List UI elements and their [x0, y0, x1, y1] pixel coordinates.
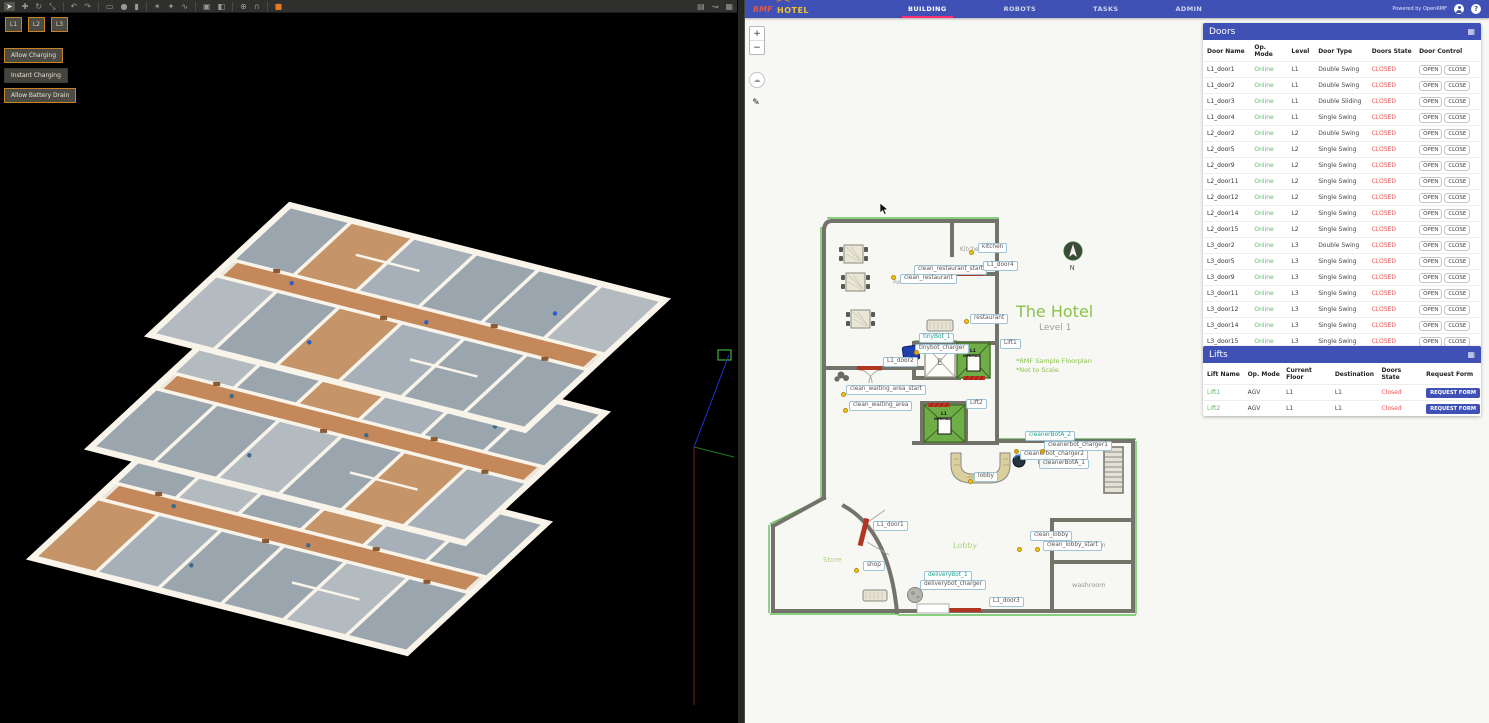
- door-level: L3: [1287, 270, 1314, 286]
- zoom-out-button[interactable]: −: [750, 41, 764, 54]
- logo-hotel-text: HOTEL: [777, 6, 809, 15]
- door-row-L1_door3: L1_door3OnlineL1Double SlidingCLOSEDOPEN…: [1203, 94, 1481, 110]
- door-mode: Online: [1250, 238, 1287, 254]
- map-note2: *Not to Scale: [1016, 366, 1059, 374]
- door-level: L1: [1287, 110, 1314, 126]
- close-button[interactable]: CLOSE: [1444, 65, 1470, 75]
- lift-destination: L1: [1331, 385, 1378, 401]
- open-button[interactable]: OPEN: [1419, 193, 1442, 203]
- close-button[interactable]: CLOSE: [1444, 225, 1470, 235]
- door-mode: Online: [1250, 222, 1287, 238]
- door-name: L2_door12: [1203, 190, 1250, 206]
- lifts-panel-title: Lifts: [1209, 350, 1228, 360]
- door-name: L1_door1: [1203, 62, 1250, 78]
- screenshot-icon[interactable]: ▤: [697, 2, 705, 11]
- close-button[interactable]: CLOSE: [1444, 193, 1470, 203]
- lifts-panel: Lifts ▦ Lift NameOp. ModeCurrent FloorDe…: [1203, 346, 1481, 416]
- lift1-cell: L1 NORMAL: [957, 343, 990, 380]
- doorway: [917, 604, 949, 613]
- door-row-L3_door9: L3_door9OnlineL3Single SwingCLOSEDOPENCL…: [1203, 270, 1481, 286]
- door-mode: Online: [1250, 286, 1287, 302]
- door-name: L1_door4: [1203, 110, 1250, 126]
- close-button[interactable]: CLOSE: [1444, 97, 1470, 107]
- lift-floor: L1: [1282, 401, 1331, 417]
- door-row-L2_door14: L2_door14OnlineL2Single SwingCLOSEDOPENC…: [1203, 206, 1481, 222]
- hotel-3d-model: [0, 13, 737, 723]
- open-button[interactable]: OPEN: [1419, 81, 1442, 91]
- door-name: L2_door9: [1203, 158, 1250, 174]
- lift2-cell: L1 NORMAL: [924, 403, 965, 442]
- door-mode: Online: [1250, 254, 1287, 270]
- doors-table: Door NameOp. ModeLevelDoor TypeDoors Sta…: [1203, 40, 1481, 349]
- svg-text:NORMAL: NORMAL: [934, 417, 951, 421]
- curve-icon[interactable]: ↝: [712, 2, 719, 11]
- door-row-L3_door5: L3_door5OnlineL3Single SwingCLOSEDOPENCL…: [1203, 254, 1481, 270]
- floorplan-map[interactable]: E L1 NORMAL L1 NORMAL: [767, 215, 1149, 617]
- door-type: Single Swing: [1314, 110, 1368, 126]
- lifts-table-header: Lift NameOp. ModeCurrent FloorDestinatio…: [1203, 363, 1481, 385]
- scale-icon[interactable]: ⤡: [49, 2, 55, 11]
- door-row-L3_door11: L3_door11OnlineL3Single SwingCLOSEDOPENC…: [1203, 286, 1481, 302]
- doors-col-level: Level: [1287, 40, 1314, 62]
- close-button[interactable]: CLOSE: [1444, 273, 1470, 283]
- door-mode: Online: [1250, 62, 1287, 78]
- close-button[interactable]: CLOSE: [1444, 241, 1470, 251]
- doors-col-door-control: Door Control: [1415, 40, 1481, 62]
- lift-mode: AGV: [1244, 401, 1283, 417]
- close-button[interactable]: CLOSE: [1444, 145, 1470, 155]
- door-level: L2: [1287, 190, 1314, 206]
- map-layers-button[interactable]: ☁: [749, 72, 765, 88]
- doors-col-door-type: Door Type: [1314, 40, 1368, 62]
- door-row-L3_door2: L3_door2OnlineL3Double SwingCLOSEDOPENCL…: [1203, 238, 1481, 254]
- lifts-col-request-form: Request Form: [1422, 363, 1481, 385]
- help-icon[interactable]: ?: [1471, 4, 1481, 14]
- compass-icon: N: [1064, 242, 1082, 272]
- map-title: The Hotel: [1015, 302, 1093, 321]
- door-row-L1_door4: L1_door4OnlineL1Single SwingCLOSEDOPENCL…: [1203, 110, 1481, 126]
- lifts-col-lift-name: Lift Name: [1203, 363, 1244, 385]
- door-type: Double Swing: [1314, 78, 1368, 94]
- tab-building[interactable]: BUILDING: [908, 0, 947, 18]
- box-icon[interactable]: ▭: [106, 2, 114, 11]
- map-subtitle: Level 1: [1039, 323, 1071, 333]
- open-button[interactable]: OPEN: [1419, 305, 1442, 315]
- door-level: L2: [1287, 206, 1314, 222]
- logo-rmf-text: RMF: [753, 5, 773, 14]
- door-type: Single Swing: [1314, 302, 1368, 318]
- plant-icon: [834, 372, 849, 382]
- undo-icon[interactable]: ↶: [71, 2, 78, 11]
- lobby-text: Lobby: [953, 541, 977, 550]
- door-mode: Online: [1250, 206, 1287, 222]
- door-state: CLOSED: [1368, 142, 1415, 158]
- door-state: CLOSED: [1368, 62, 1415, 78]
- door-type: Double Sliding: [1314, 94, 1368, 110]
- door-state: CLOSED: [1368, 174, 1415, 190]
- door-state: CLOSED: [1368, 206, 1415, 222]
- door-row-L3_door12: L3_door12OnlineL3Single SwingCLOSEDOPENC…: [1203, 302, 1481, 318]
- door-level: L1: [1287, 94, 1314, 110]
- door-mode: Online: [1250, 270, 1287, 286]
- door-state: CLOSED: [1368, 222, 1415, 238]
- door-name: L2_door2: [1203, 126, 1250, 142]
- door-name: L2_door15: [1203, 222, 1250, 238]
- door-row-L1_door2: L1_door2OnlineL1Double SwingCLOSEDOPENCL…: [1203, 78, 1481, 94]
- deliverybot-robot: [908, 588, 923, 603]
- door-type: Double Swing: [1314, 62, 1368, 78]
- close-button[interactable]: CLOSE: [1444, 337, 1470, 347]
- door-name: L3_door14: [1203, 318, 1250, 334]
- record-icon[interactable]: ■: [275, 2, 283, 11]
- kitchen-text: Kitchen: [960, 246, 983, 253]
- door-name: L1_door2: [1203, 78, 1250, 94]
- washroom-text: washroom: [1072, 581, 1106, 589]
- doors-panel-header: Doors ▦: [1203, 23, 1481, 40]
- door-level: L3: [1287, 302, 1314, 318]
- door-row-L1_door1: L1_door1OnlineL1Double SwingCLOSEDOPENCL…: [1203, 62, 1481, 78]
- door-type: Single Swing: [1314, 142, 1368, 158]
- door-mode: Online: [1250, 142, 1287, 158]
- door-row-L2_door2: L2_door2OnlineL2Double SwingCLOSEDOPENCL…: [1203, 126, 1481, 142]
- open-button[interactable]: OPEN: [1419, 145, 1442, 155]
- doors-panel: Doors ▦ Door NameOp. ModeLevelDoor TypeD…: [1203, 23, 1481, 349]
- door-state: CLOSED: [1368, 238, 1415, 254]
- open-button[interactable]: OPEN: [1419, 129, 1442, 139]
- lift-floor: L1: [1282, 385, 1331, 401]
- gazebo-toolbar: ➤✚↻⤡↶↷▭●▮✶✦∿▣◧⊕∩■▤↝▦: [0, 0, 737, 13]
- floorplan-svg: E L1 NORMAL L1 NORMAL: [767, 215, 1149, 617]
- map-controls: + − ☁ ✎: [749, 26, 765, 110]
- door-row-L2_door12: L2_door12OnlineL2Single SwingCLOSEDOPENC…: [1203, 190, 1481, 206]
- svg-text:E: E: [937, 358, 943, 368]
- cylinder-icon[interactable]: ▮: [134, 2, 138, 11]
- door-row-L2_door5: L2_door5OnlineL2Single SwingCLOSEDOPENCL…: [1203, 142, 1481, 158]
- open-button[interactable]: OPEN: [1419, 273, 1442, 283]
- open-button[interactable]: OPEN: [1419, 161, 1442, 171]
- redo-icon[interactable]: ↷: [84, 2, 91, 11]
- lift-name: Lift2: [1203, 401, 1244, 417]
- door-state: CLOSED: [1368, 270, 1415, 286]
- door-name: L2_door11: [1203, 174, 1250, 190]
- directional-light-icon[interactable]: ∿: [181, 2, 188, 11]
- svg-text:NORMAL: NORMAL: [963, 354, 980, 358]
- door-row-L2_door11: L2_door11OnlineL2Single SwingCLOSEDOPENC…: [1203, 174, 1481, 190]
- open-button[interactable]: OPEN: [1419, 241, 1442, 251]
- door-type: Double Swing: [1314, 238, 1368, 254]
- sphere-icon[interactable]: ●: [120, 2, 127, 11]
- door-name: L1_door3: [1203, 94, 1250, 110]
- door-name: L3_door5: [1203, 254, 1250, 270]
- door-mode: Online: [1250, 318, 1287, 334]
- door-level: L3: [1287, 286, 1314, 302]
- door-mode: Online: [1250, 190, 1287, 206]
- door-name: L3_door2: [1203, 238, 1250, 254]
- tinybot-robot: [902, 345, 920, 361]
- close-button[interactable]: CLOSE: [1444, 257, 1470, 267]
- gazebo-3d-viewport[interactable]: ➤✚↻⤡↶↷▭●▮✶✦∿▣◧⊕∩■▤↝▦ L1L2L3 Allow Chargi…: [0, 0, 737, 723]
- rmf-hotel-logo: ^ RMF HOTEL: [753, 2, 813, 16]
- table-grid-icon[interactable]: ▦: [1467, 27, 1475, 36]
- rotate-icon[interactable]: ↻: [35, 2, 42, 11]
- map-draw-button[interactable]: ✎: [749, 96, 763, 110]
- door-state: CLOSED: [1368, 126, 1415, 142]
- door-mode: Online: [1250, 158, 1287, 174]
- lift-row-Lift2: Lift2AGVL1L1ClosedREQUEST FORM: [1203, 401, 1481, 417]
- door-level: L2: [1287, 174, 1314, 190]
- lifts-table: Lift NameOp. ModeCurrent FloorDestinatio…: [1203, 363, 1481, 416]
- door-name: L2_door5: [1203, 142, 1250, 158]
- snap-icon[interactable]: ∩: [254, 2, 260, 11]
- door-type: Single Swing: [1314, 174, 1368, 190]
- door-type: Single Swing: [1314, 318, 1368, 334]
- door-mode: Online: [1250, 174, 1287, 190]
- door-row-L2_door9: L2_door9OnlineL2Single SwingCLOSEDOPENCL…: [1203, 158, 1481, 174]
- door-level: L3: [1287, 254, 1314, 270]
- doors-panel-title: Doors: [1209, 27, 1235, 37]
- door-state: CLOSED: [1368, 78, 1415, 94]
- rmf-dashboard: ^ RMF HOTEL BUILDINGROBOTSTASKSADMIN Pow…: [745, 0, 1489, 723]
- tab-admin[interactable]: ADMIN: [1175, 0, 1202, 18]
- map-note1: *RMF Sample Floorplan: [1016, 357, 1092, 365]
- user-account-icon[interactable]: [1454, 4, 1464, 14]
- door-type: Single Swing: [1314, 158, 1368, 174]
- cleanerbot-robots: [1013, 455, 1051, 468]
- door-mode: Online: [1250, 126, 1287, 142]
- door-mode: Online: [1250, 94, 1287, 110]
- lifts-col-op--mode: Op. Mode: [1244, 363, 1283, 385]
- door-name: L3_door11: [1203, 286, 1250, 302]
- close-button[interactable]: CLOSE: [1444, 81, 1470, 91]
- doors-col-op--mode: Op. Mode: [1250, 40, 1287, 62]
- translate-icon[interactable]: ✚: [22, 2, 29, 11]
- svg-text:N: N: [1070, 264, 1075, 272]
- store-text: Store: [823, 556, 842, 564]
- door-mode: Online: [1250, 302, 1287, 318]
- map-zoom-control: + −: [749, 26, 765, 55]
- tab-robots[interactable]: ROBOTS: [1004, 0, 1037, 18]
- door-state: CLOSED: [1368, 158, 1415, 174]
- door-type: Single Swing: [1314, 270, 1368, 286]
- staircase: [1104, 447, 1123, 493]
- cursor-icon[interactable]: ➤: [4, 2, 15, 11]
- align-icon[interactable]: ⊕: [240, 2, 247, 11]
- open-button[interactable]: OPEN: [1419, 97, 1442, 107]
- door-type: Double Swing: [1314, 126, 1368, 142]
- open-button[interactable]: OPEN: [1419, 321, 1442, 331]
- door-level: L3: [1287, 238, 1314, 254]
- copy-icon[interactable]: ▣: [203, 2, 211, 11]
- reception-desk: [951, 453, 1010, 483]
- paste-icon[interactable]: ◧: [218, 2, 226, 11]
- door-name: L3_door9: [1203, 270, 1250, 286]
- door-level: L1: [1287, 78, 1314, 94]
- door-type: Single Swing: [1314, 286, 1368, 302]
- lift-name: Lift1: [1203, 385, 1244, 401]
- door-level: L2: [1287, 158, 1314, 174]
- lift-destination: L1: [1331, 401, 1378, 417]
- open-button[interactable]: OPEN: [1419, 289, 1442, 299]
- open-button[interactable]: OPEN: [1419, 177, 1442, 187]
- open-button[interactable]: OPEN: [1419, 225, 1442, 235]
- request-form-button[interactable]: REQUEST FORM: [1426, 404, 1480, 414]
- door-type: Single Swing: [1314, 254, 1368, 270]
- open-button[interactable]: OPEN: [1419, 209, 1442, 219]
- door-level: L2: [1287, 142, 1314, 158]
- door-name: L3_door12: [1203, 302, 1250, 318]
- door-mode: Online: [1250, 78, 1287, 94]
- open-button[interactable]: OPEN: [1419, 65, 1442, 75]
- door-state: CLOSED: [1368, 318, 1415, 334]
- door-state: CLOSED: [1368, 94, 1415, 110]
- gazebo-world-axes: [680, 335, 740, 715]
- tab-tasks[interactable]: TASKS: [1093, 0, 1118, 18]
- door-type: Single Swing: [1314, 190, 1368, 206]
- door-type: Single Swing: [1314, 222, 1368, 238]
- washroom2-text: washroom: [1072, 541, 1106, 549]
- close-button[interactable]: CLOSE: [1444, 177, 1470, 187]
- door-state: CLOSED: [1368, 286, 1415, 302]
- lift-state: Closed: [1377, 385, 1422, 401]
- restaurant-text: Restaurant: [893, 279, 926, 286]
- close-button[interactable]: CLOSE: [1444, 305, 1470, 315]
- close-button[interactable]: CLOSE: [1444, 321, 1470, 331]
- open-button[interactable]: OPEN: [1419, 257, 1442, 267]
- window-divider[interactable]: [737, 0, 745, 723]
- lifts-col-doors-state: Doors State: [1377, 363, 1422, 385]
- zoom-in-button[interactable]: +: [750, 27, 764, 41]
- door-state: CLOSED: [1368, 302, 1415, 318]
- close-button[interactable]: CLOSE: [1444, 113, 1470, 123]
- close-button[interactable]: CLOSE: [1444, 289, 1470, 299]
- door-level: L1: [1287, 62, 1314, 78]
- doors-col-doors-state: Doors State: [1368, 40, 1415, 62]
- door-row-L2_door15: L2_door15OnlineL2Single SwingCLOSEDOPENC…: [1203, 222, 1481, 238]
- restaurant-tables: [839, 245, 875, 328]
- door-state: CLOSED: [1368, 110, 1415, 126]
- lifts-col-current-floor: Current Floor: [1282, 363, 1331, 385]
- door-row-L3_door14: L3_door14OnlineL3Single SwingCLOSEDOPENC…: [1203, 318, 1481, 334]
- close-button[interactable]: CLOSE: [1444, 161, 1470, 171]
- door-mode: Online: [1250, 110, 1287, 126]
- close-button[interactable]: CLOSE: [1444, 209, 1470, 219]
- header-right: Powered by OpenRMF ?: [1392, 4, 1481, 14]
- spot-light-icon[interactable]: ✦: [168, 2, 175, 11]
- doors-table-header: Door NameOp. ModeLevelDoor TypeDoors Sta…: [1203, 40, 1481, 62]
- lifts-panel-header: Lifts ▦: [1203, 346, 1481, 363]
- door-name: L2_door14: [1203, 206, 1250, 222]
- open-button[interactable]: OPEN: [1419, 337, 1442, 347]
- elevator-box: E: [925, 345, 955, 377]
- camera-icon[interactable]: ▦: [725, 2, 733, 11]
- table-grid-icon[interactable]: ▦: [1467, 350, 1475, 359]
- close-button[interactable]: CLOSE: [1444, 129, 1470, 139]
- door-type: Single Swing: [1314, 206, 1368, 222]
- door-state: CLOSED: [1368, 190, 1415, 206]
- mouse-cursor: [879, 202, 889, 216]
- app-header: ^ RMF HOTEL BUILDINGROBOTSTASKSADMIN Pow…: [745, 0, 1489, 18]
- lift-row-Lift1: Lift1AGVL1L1ClosedREQUEST FORM: [1203, 385, 1481, 401]
- open-button[interactable]: OPEN: [1419, 113, 1442, 123]
- header-tabs: BUILDINGROBOTSTASKSADMIN: [908, 0, 1202, 18]
- door-state: CLOSED: [1368, 254, 1415, 270]
- lift-mode: AGV: [1244, 385, 1283, 401]
- doors-col-door-name: Door Name: [1203, 40, 1250, 62]
- point-light-icon[interactable]: ✶: [154, 2, 161, 11]
- lifts-col-destination: Destination: [1331, 363, 1378, 385]
- door-level: L2: [1287, 222, 1314, 238]
- lift-state: Closed: [1377, 401, 1422, 417]
- powered-by-text: Powered by OpenRMF: [1392, 6, 1447, 12]
- request-form-button[interactable]: REQUEST FORM: [1426, 388, 1480, 398]
- door-level: L3: [1287, 318, 1314, 334]
- door-level: L2: [1287, 126, 1314, 142]
